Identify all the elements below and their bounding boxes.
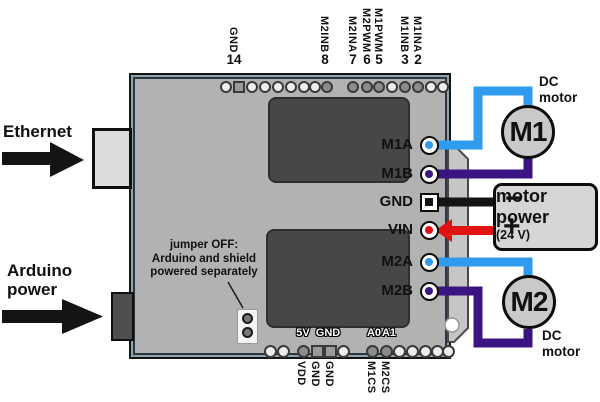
right-pin-label: M2B xyxy=(367,282,413,299)
ethernet-arrow xyxy=(2,142,84,177)
wire-terminal xyxy=(425,226,433,234)
wire-terminal xyxy=(425,258,433,266)
top-pin-number: 5 xyxy=(367,52,391,67)
top-header-pin xyxy=(220,81,232,93)
right-pin-pad-gnd xyxy=(420,193,439,212)
right-pin-label: M2A xyxy=(367,253,413,270)
top-header-pin xyxy=(361,81,373,93)
right-pin-label: GND xyxy=(367,193,413,210)
top-pin-name: M1INB xyxy=(398,16,410,53)
bottom-pin-name: VDD xyxy=(295,361,307,386)
top-header-pin xyxy=(272,81,284,93)
bottom-header-pin xyxy=(277,345,290,358)
right-pin-label: M1B xyxy=(367,165,413,182)
top-pin-name: M1INA xyxy=(411,16,423,53)
top-header-pin xyxy=(399,81,411,93)
top-header-pin xyxy=(347,81,359,93)
top-header-pin xyxy=(321,81,333,93)
top-header-pin xyxy=(233,81,245,93)
bottom-header-pin xyxy=(380,345,393,358)
bottom-header-pin xyxy=(311,345,324,358)
bottom-header-pin xyxy=(442,345,455,358)
top-header-pin xyxy=(285,81,297,93)
right-pin-pad-m2b xyxy=(420,282,439,301)
top-pin-name: M2INA xyxy=(346,16,358,53)
silkscreen-label: A1 xyxy=(371,327,407,339)
wire-terminal xyxy=(425,198,433,206)
top-pin-name: M2PWM xyxy=(360,8,372,53)
bottom-header-pin xyxy=(297,345,310,358)
right-pin-pad-vin xyxy=(420,221,439,240)
top-pin-number: 8 xyxy=(313,52,337,67)
top-header-pin xyxy=(309,81,321,93)
m2a-wire xyxy=(429,262,528,278)
bottom-header-pin xyxy=(324,345,337,358)
jumper-leader-line xyxy=(228,282,243,308)
right-pin-pad-m2a xyxy=(420,253,439,272)
ethernet-label: Ethernet xyxy=(3,122,72,141)
top-pin-name: M2INB xyxy=(318,16,330,53)
bottom-pin-name: M1CS xyxy=(365,361,377,394)
bottom-header-pin xyxy=(419,345,432,358)
right-pin-label: VIN xyxy=(367,221,413,238)
arduino-power-arrow xyxy=(2,299,103,334)
top-pin-name: GND xyxy=(227,27,239,53)
dc-motor-caption-m1: DC motor xyxy=(539,74,577,106)
plus-terminal: + xyxy=(503,212,521,242)
bottom-pin-name: GND xyxy=(309,361,321,387)
top-header-pin xyxy=(412,81,424,93)
silkscreen-label: GND xyxy=(310,327,346,339)
dc-motor-caption-m2: DC motor xyxy=(542,328,580,360)
motor-shield-wiring-diagram: GND14M2INB8M2INA7M2PWM6M1PWM5M1INB3M1INA… xyxy=(0,0,600,402)
right-pin-pad-m1a xyxy=(420,136,439,155)
mounting-hole xyxy=(445,318,459,332)
motor-m1: M1 xyxy=(501,105,555,159)
right-pin-pad-m1b xyxy=(420,165,439,184)
jumper-note: jumper OFF: Arduino and shield powered s… xyxy=(138,239,270,280)
top-header-pin xyxy=(425,81,437,93)
m1b-wire xyxy=(429,158,528,174)
top-header-pin xyxy=(259,81,271,93)
bottom-header-pin xyxy=(337,345,350,358)
top-header-pin xyxy=(373,81,385,93)
top-pin-name: M1PWM xyxy=(372,8,384,53)
bottom-pin-name: GND xyxy=(323,361,335,387)
bottom-header-pin xyxy=(264,345,277,358)
top-header-pin xyxy=(437,81,449,93)
motor-m2: M2 xyxy=(502,275,556,329)
right-pin-label: M1A xyxy=(367,136,413,153)
top-header-pin xyxy=(386,81,398,93)
wire-terminal xyxy=(425,170,433,178)
bottom-header-pin xyxy=(406,345,419,358)
top-header-pin xyxy=(246,81,258,93)
bottom-pin-name: M2CS xyxy=(379,361,391,394)
bottom-header-pin xyxy=(393,345,406,358)
wire-terminal xyxy=(425,141,433,149)
top-pin-number: 2 xyxy=(406,52,430,67)
wire-terminal xyxy=(425,287,433,295)
motor-power-supply: − + motor power (24 V) xyxy=(493,183,598,251)
bottom-header-pin xyxy=(366,345,379,358)
top-pin-number: 14 xyxy=(222,52,246,67)
arduino-power-label: Arduino power xyxy=(7,261,72,299)
